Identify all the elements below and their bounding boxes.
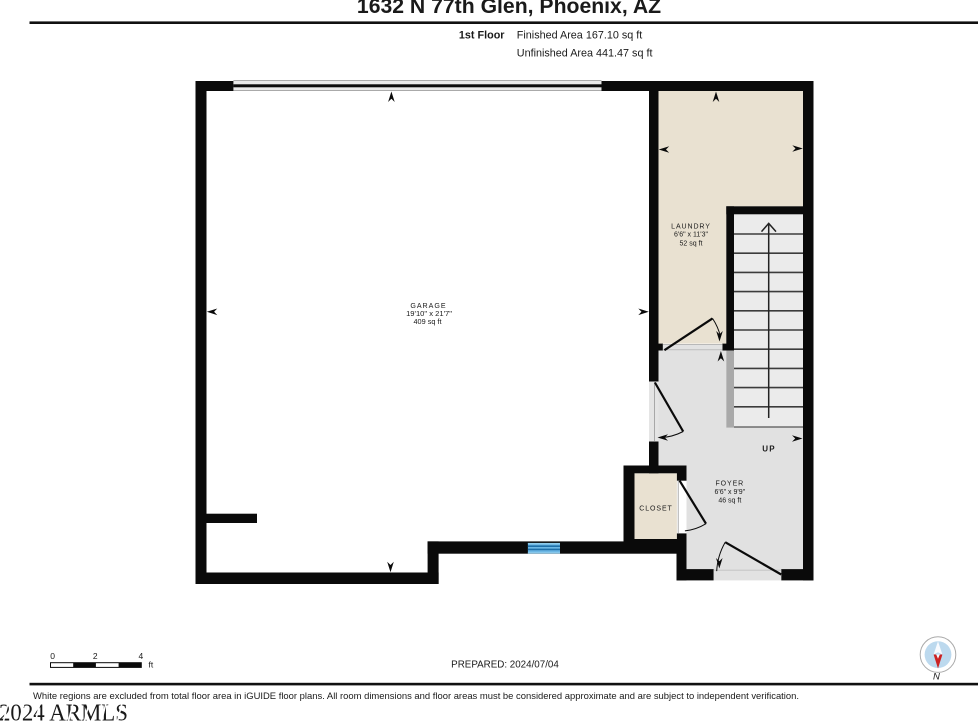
svg-text:6'6" x 11'3": 6'6" x 11'3" bbox=[674, 232, 708, 239]
svg-text:409 sq ft: 409 sq ft bbox=[414, 317, 442, 326]
svg-text:1632 N 77th Glen, Phoenix, AZ: 1632 N 77th Glen, Phoenix, AZ bbox=[357, 0, 661, 18]
svg-text:1st Floor: 1st Floor bbox=[459, 30, 505, 42]
svg-text:46 sq ft: 46 sq ft bbox=[718, 498, 741, 505]
svg-text:FOYER: FOYER bbox=[715, 481, 744, 488]
svg-text:Unfinished Area 441.47 sq ft: Unfinished Area 441.47 sq ft bbox=[517, 47, 653, 59]
svg-text:White regions are excluded fro: White regions are excluded from total fl… bbox=[33, 691, 799, 701]
svg-text:52 sq ft: 52 sq ft bbox=[680, 240, 703, 247]
svg-text:6'6" x 9'9": 6'6" x 9'9" bbox=[714, 489, 745, 496]
svg-text:PREPARED: 2024/07/04: PREPARED: 2024/07/04 bbox=[451, 659, 559, 670]
svg-text:CLOSET: CLOSET bbox=[639, 505, 672, 512]
svg-text:Finished Area 167.10 sq ft: Finished Area 167.10 sq ft bbox=[517, 30, 642, 42]
svg-text:2024 ARMLS: 2024 ARMLS bbox=[0, 701, 128, 721]
svg-text:LAUNDRY: LAUNDRY bbox=[671, 223, 711, 230]
svg-text:N: N bbox=[933, 672, 940, 683]
svg-text:2: 2 bbox=[93, 651, 98, 661]
svg-text:ft: ft bbox=[149, 659, 154, 669]
svg-text:UP: UP bbox=[762, 445, 776, 454]
svg-text:4: 4 bbox=[139, 651, 144, 661]
svg-text:0: 0 bbox=[50, 651, 55, 661]
